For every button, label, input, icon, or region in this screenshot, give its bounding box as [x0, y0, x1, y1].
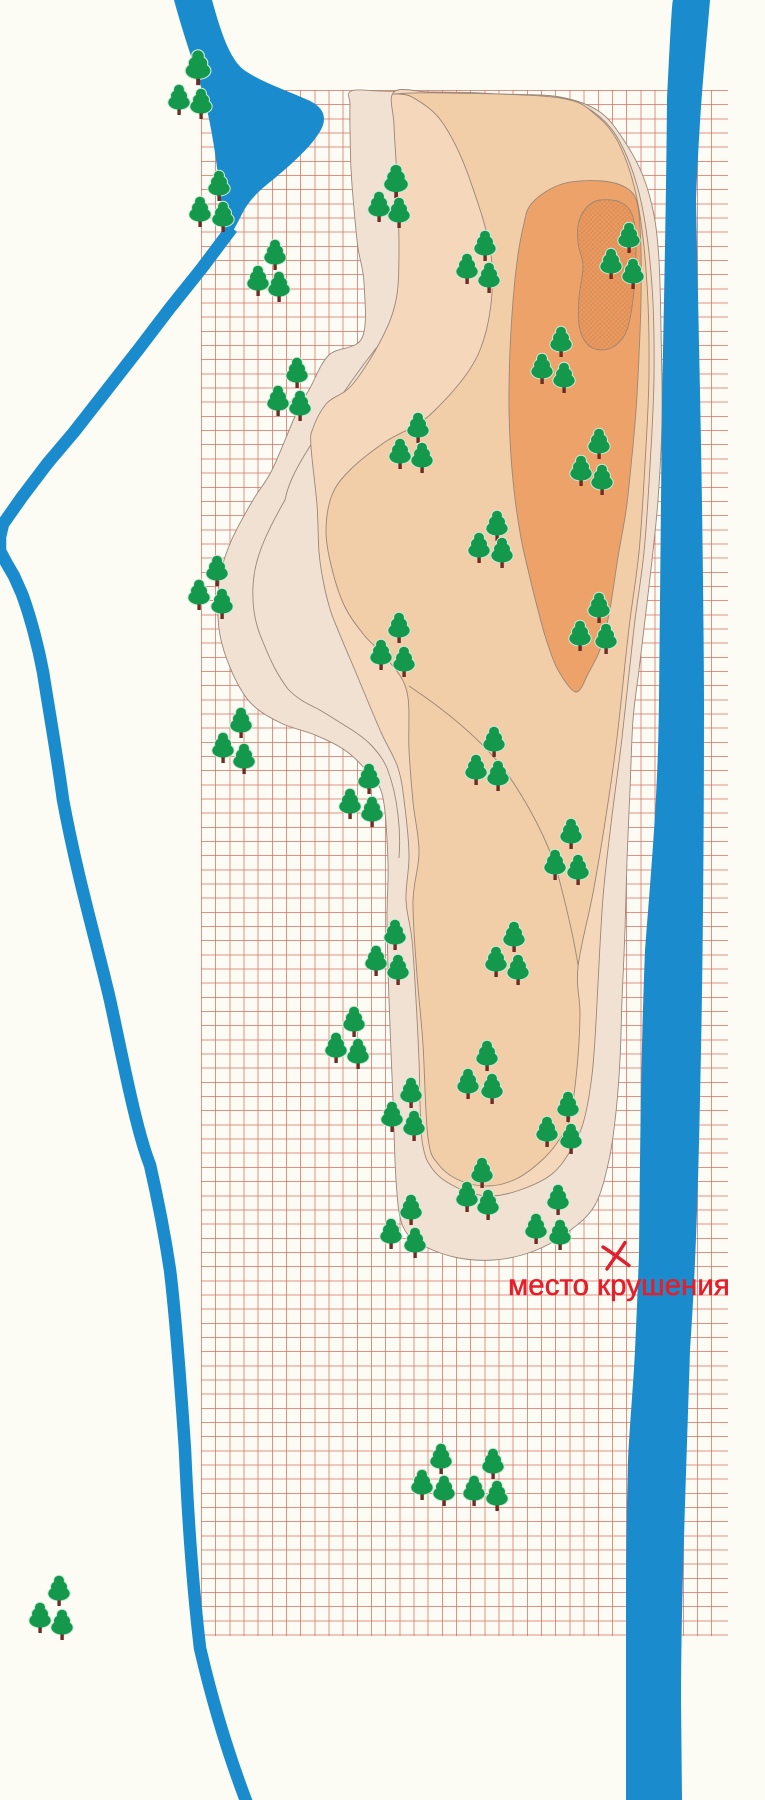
- svg-text:место крушения: место крушения: [508, 1269, 730, 1302]
